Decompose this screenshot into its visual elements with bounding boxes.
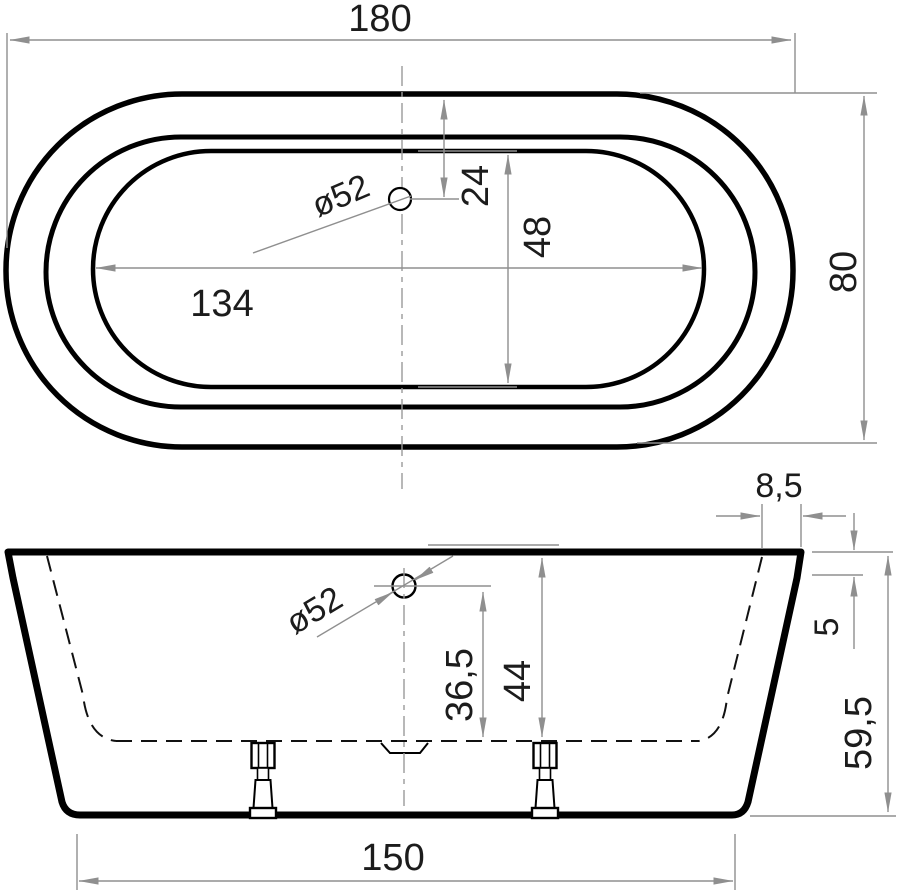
- dim-label-drain-diameter: ø52: [306, 167, 375, 225]
- technical-drawing: 180 80 134 48 24: [0, 0, 900, 893]
- tub-basin-edge: [93, 151, 704, 387]
- dim-label-rim-to-floor: 44: [497, 660, 539, 702]
- dim-label-rim-top-width: 8,5: [755, 467, 802, 505]
- dim-overflow-diameter: ø52: [279, 556, 453, 642]
- drain-hole: [389, 188, 411, 210]
- dim-inner-length: 134: [96, 268, 702, 325]
- dim-label-overall-length: 180: [348, 0, 411, 40]
- top-view: 180 80 134 48 24: [6, 0, 877, 489]
- front-view: ø52 8,5 5 59,5 36,5: [8, 467, 896, 890]
- dim-drain-offset: 24: [410, 100, 497, 207]
- dim-label-base-length: 150: [361, 837, 424, 879]
- dim-drain-diameter: ø52: [253, 167, 411, 253]
- dim-label-inner-width: 48: [517, 216, 559, 258]
- dim-label-overall-width: 80: [823, 251, 865, 293]
- dim-label-rim-edge-height: 5: [808, 618, 846, 637]
- dim-label-inner-length: 134: [190, 283, 253, 325]
- dim-rim-to-floor: 44: [497, 558, 542, 737]
- dim-label-overall-height: 59,5: [838, 696, 880, 770]
- inner-wall-left: [47, 556, 116, 741]
- inner-wall-right: [699, 557, 762, 741]
- leg-right: [532, 743, 558, 818]
- dim-label-overflow-to-floor: 36,5: [439, 648, 481, 722]
- dim-label-overflow-diameter: ø52: [279, 579, 349, 642]
- leg-left: [250, 743, 276, 818]
- dim-rim-top-width: 8,5: [716, 467, 846, 549]
- dim-rim-edge-height: 5: [808, 513, 893, 649]
- drawing-page: 180 80 134 48 24: [0, 0, 900, 893]
- dim-base-length: 150: [77, 834, 735, 890]
- dim-label-drain-offset: 24: [455, 165, 497, 207]
- dim-overflow-to-floor: 36,5: [439, 592, 483, 737]
